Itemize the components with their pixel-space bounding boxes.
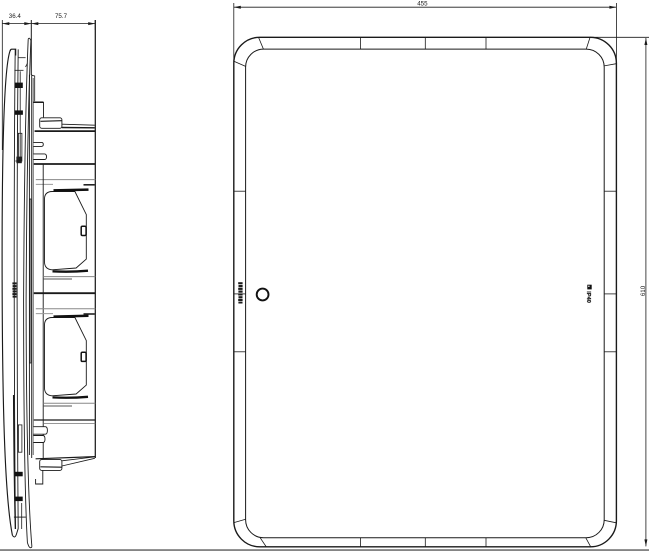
svg-text:IP40: IP40 xyxy=(585,291,591,303)
svg-text:36.4: 36.4 xyxy=(9,13,22,20)
svg-text:455: 455 xyxy=(417,1,428,8)
svg-text:610: 610 xyxy=(640,285,647,296)
svg-text:75.7: 75.7 xyxy=(55,13,68,20)
